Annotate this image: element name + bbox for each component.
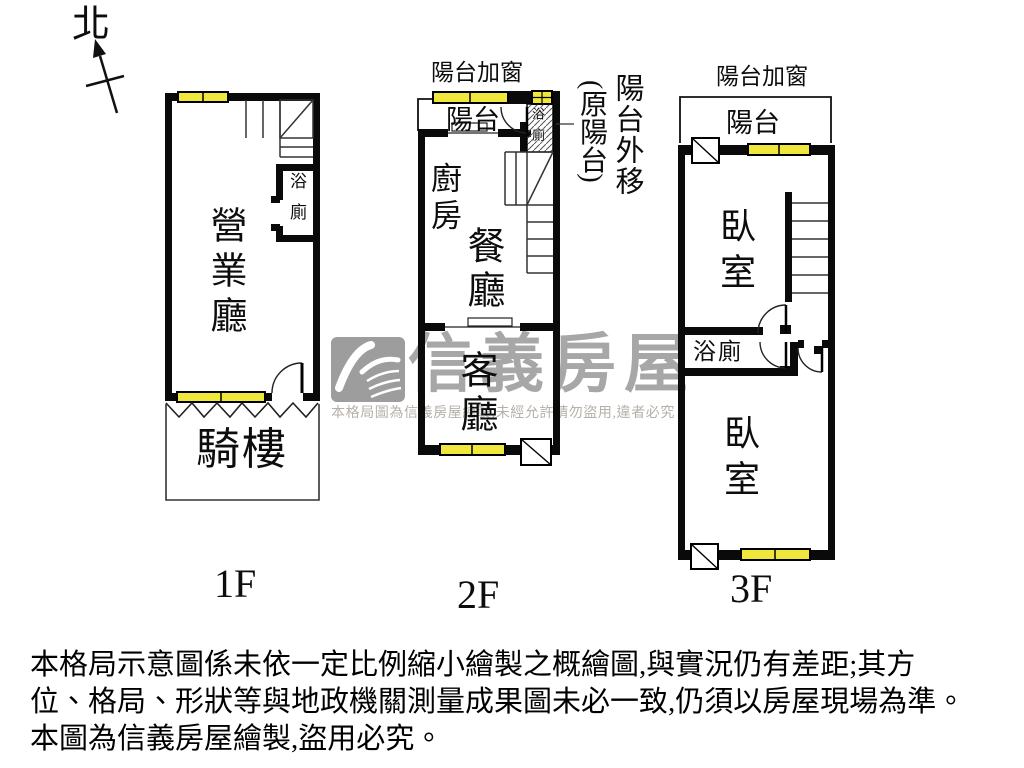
disclaimer-line-2: 位、格局、形狀等與地政機關測量成果圖未必一致,仍須以房屋現場為準。 (30, 684, 965, 721)
floor-label-2f: 2F (457, 575, 499, 615)
room-label-2f-bath: 浴廁 (531, 107, 544, 149)
room-label-3f-bedroom-front: 臥室 (717, 207, 753, 299)
room-label-3f-bath: 浴廁 (693, 340, 743, 363)
room-label-3f-bedroom-back: 臥室 (721, 414, 757, 506)
room-label-2f-kitchen: 廚房 (428, 162, 459, 236)
room-label-1f-bath: 浴廁 (288, 172, 305, 234)
note-label-3f-balcony-window: 陽台加窗 (716, 65, 808, 88)
disclaimer-text: 本格局示意圖係未依一定比例縮小繪製之概繪圖,與實況仍有差距;其方 位、格局、形狀… (30, 647, 965, 758)
room-label-2f-balcony: 陽台 (446, 107, 500, 134)
floor-label-3f: 3F (730, 569, 772, 609)
annotation-2f-balcony-moved: 陽台外移 (612, 73, 641, 197)
note-label-2f-balcony-window: 陽台加窗 (431, 61, 523, 84)
annotation-2f-balcony-moved-sub: (原陽台) (577, 80, 605, 183)
north-label: 北 (72, 6, 110, 44)
floor-label-1f: 1F (214, 564, 256, 604)
floorplan-sheet: 信義房屋 本格局圖為信義房屋繪製,未經允許請勿盜用,違者必究 (0, 0, 1024, 768)
disclaimer-line-3: 本圖為信義房屋繪製,盜用必究。 (30, 721, 965, 758)
room-label-2f-dining: 餐廳 (463, 226, 501, 314)
room-label-2f-living: 客廳 (456, 350, 494, 438)
room-label-3f-balcony: 陽台 (726, 110, 780, 137)
room-label-1f-arcade: 騎樓 (196, 428, 288, 472)
disclaimer-line-1: 本格局示意圖係未依一定比例縮小繪製之概繪圖,與實況仍有差距;其方 (30, 647, 965, 684)
labels-layer: 北 營業廳 浴廁 騎樓 1F 陽台加窗 陽台 浴廁 廚房 餐廳 客廳 陽台外移 … (0, 0, 1024, 768)
room-label-1f-main: 營業廳 (206, 206, 243, 341)
